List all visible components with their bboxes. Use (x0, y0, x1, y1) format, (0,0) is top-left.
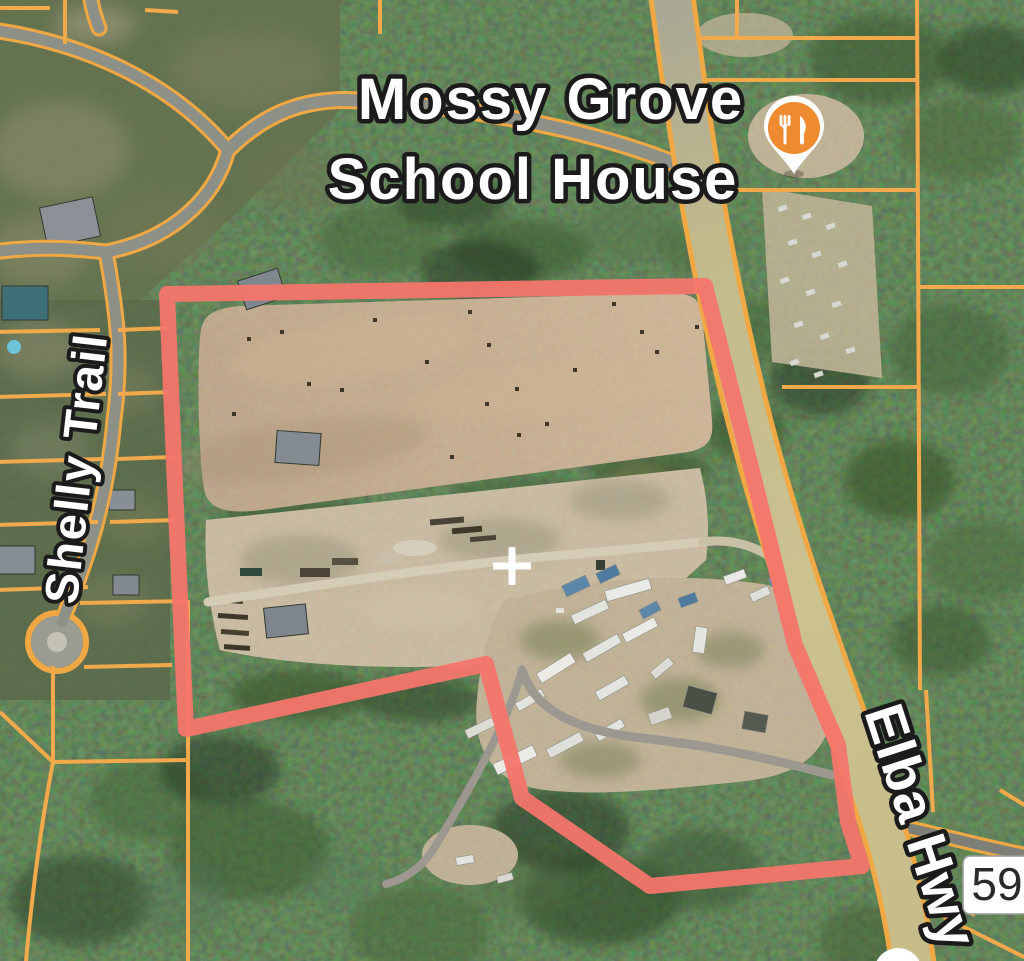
map-canvas[interactable]: Shelly Trail Elba Hwy Mossy Grove School… (0, 0, 1024, 961)
route-shield-number: 59 (971, 858, 1022, 910)
satellite-imagery: Shelly Trail Elba Hwy Mossy Grove School… (0, 0, 1024, 961)
place-label-line1: Mossy Grove (358, 67, 744, 132)
route-shield-59: 59 (963, 856, 1024, 914)
place-label-line2: School House (328, 147, 739, 212)
